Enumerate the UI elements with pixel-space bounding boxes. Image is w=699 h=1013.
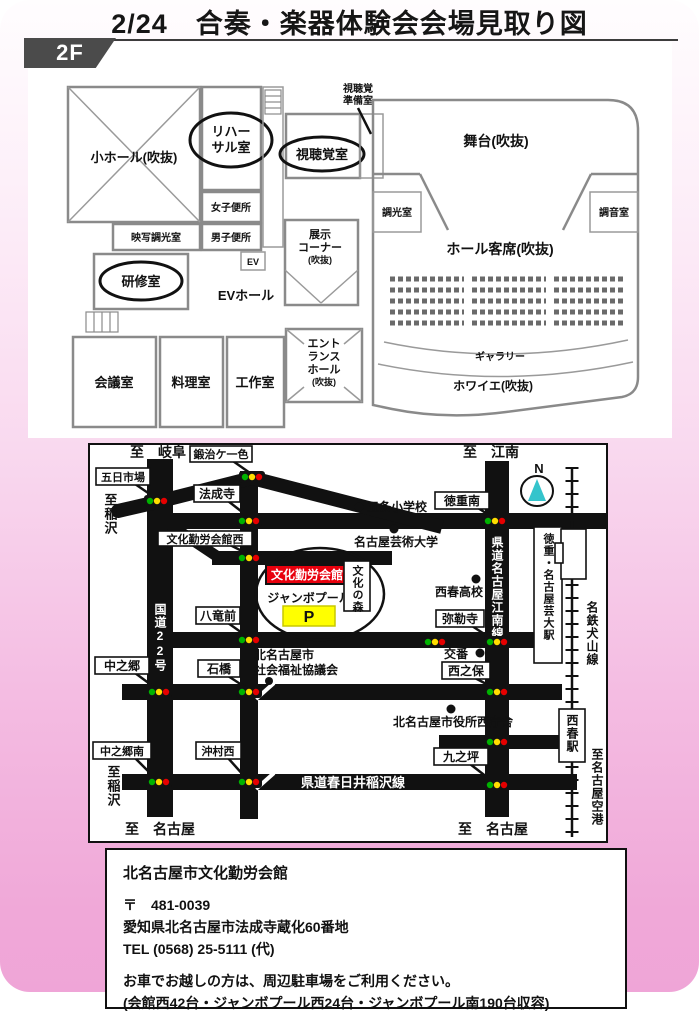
direction-to-inazawa-bottom: 至稲沢	[106, 765, 121, 807]
elevator: EV	[241, 252, 265, 270]
room-label-ev-hall: EVホール	[218, 288, 274, 303]
traffic-signal	[236, 515, 262, 527]
page-title: 2/24 合奏・楽器体験会会場見取り図	[0, 2, 699, 41]
signal-label-mirokuji: 弥勒寺	[442, 611, 478, 626]
signal-label-kaikan-nishi: 文化勤労会館西	[167, 532, 244, 546]
road-label-kasugai-line: 県道春日井稲沢線	[301, 775, 406, 790]
room-label-rehearsal-1: リハー	[211, 124, 250, 139]
room-label-small-hall: 小ホール(吹抜)	[91, 150, 178, 165]
room-label-entrance-3: ホール	[308, 363, 341, 376]
signal-label-kunotsubo: 九之坪	[442, 749, 479, 764]
traffic-signal	[236, 552, 262, 564]
traffic-signal	[484, 779, 510, 791]
room-label-entrance-1: エント	[308, 337, 341, 350]
signal-label-hachiryumae: 八竜前	[199, 608, 236, 623]
floor-plan-drawing: 小ホール(吹抜) リハー サル室 女子便所 映写調光室 男子便所	[28, 42, 672, 438]
signal-label-hojoji: 法成寺	[199, 486, 235, 501]
venue-info-parking-note: お車でお越しの方は、周辺駐車場をご利用ください。	[123, 971, 609, 991]
venue-info-name: 北名古屋市文化勤労会館	[123, 862, 609, 883]
room-label-entrance-2: ランス	[308, 350, 341, 363]
room-label-av: 視聴覚室	[295, 147, 348, 162]
direction-to-nagoya-left: 至 名古屋	[125, 821, 195, 837]
room-label-tuning: 調音室	[599, 206, 629, 219]
room-label-rehearsal-2: サル室	[211, 140, 250, 155]
direction-to-airport: 至名古屋空港	[590, 748, 604, 826]
room-label-exhibit-2: コーナー	[298, 241, 342, 254]
room-label-av-prep-1: 視聴覚	[342, 82, 373, 95]
small-hall: 小ホール(吹抜)	[68, 87, 200, 222]
station-nishiharu: 西春駅	[559, 709, 585, 762]
room-label-training: 研修室	[121, 274, 160, 289]
road-label-route22: 国道22号	[153, 603, 167, 672]
seat-rows	[390, 279, 624, 323]
room-label-projection: 映写調光室	[131, 231, 181, 244]
signal-label-tokushige-minami: 徳重南	[443, 493, 480, 508]
traffic-signal	[482, 515, 508, 527]
parking-p-label: P	[304, 609, 315, 626]
access-map-card: 文化勤労会館 ジャンボプール P 文化の森 国道22号 県道名古屋江南線 県道春…	[88, 443, 608, 843]
stairs-lower	[86, 312, 118, 332]
road-label-meitetsu: 名鉄犬山線	[585, 600, 599, 666]
direction-to-konan: 至 江南	[463, 445, 519, 460]
meeting-room: 会議室	[73, 337, 156, 427]
station-label-nishiharu: 西春駅	[565, 714, 579, 753]
womens-toilet: 女子便所	[202, 192, 261, 222]
traffic-signal	[239, 471, 265, 483]
entrance-hall: エント ランス ホール (吹抜)	[286, 329, 362, 402]
road-label-konan-line: 県道名古屋江南線	[490, 536, 504, 640]
venue-info-parking-capacity: (会館西42台・ジャンボプール西24台・ジャンボプール南190台収容)	[123, 993, 609, 1013]
signal-label-okimura-nishi: 沖村西	[202, 744, 235, 758]
signal-label-ishibashi: 石橋	[206, 661, 232, 676]
room-label-ev: EV	[247, 257, 259, 267]
av-prep-room: 視聴覚 準備室	[342, 82, 383, 178]
direction-to-inazawa-top: 至稲沢	[103, 493, 118, 535]
roads	[118, 459, 606, 819]
signal-label-itsukaichiba: 五日市場	[101, 470, 145, 484]
bunka-no-mori-label: 文化の森	[351, 564, 364, 613]
landmark-dot-nishiharu-hs	[472, 575, 481, 584]
mens-toilet: 男子便所	[202, 224, 261, 250]
corridor-stairs	[263, 87, 283, 247]
exhibit-corner: 展示 コーナー (吹抜)	[285, 220, 358, 305]
room-label-stage: 舞台(吹抜)	[463, 133, 528, 149]
landmark-dot-geidai-univ	[390, 525, 399, 534]
room-label-av-prep-2: 準備室	[343, 94, 373, 107]
room-label-womens-toilet: 女子便所	[211, 201, 251, 214]
rehearsal-room: リハー サル室	[190, 87, 272, 190]
craft-room: 工作室	[227, 337, 284, 427]
venue-info-address: 愛知県北名古屋市法成寺蔵化60番地	[123, 917, 609, 937]
room-label-cooking: 料理室	[171, 375, 210, 390]
floor-plan-card: 小ホール(吹抜) リハー サル室 女子便所 映写調光室 男子便所	[28, 42, 672, 438]
av-room: 視聴覚室	[280, 114, 364, 178]
signal-label-nishinoho: 西之保	[448, 663, 485, 678]
landmark-dot-gojo	[355, 503, 364, 512]
traffic-signal	[236, 634, 262, 646]
signal-label-nakanogo: 中之郷	[104, 658, 140, 673]
venue-info-box: 北名古屋市文化勤労会館 〒 481-0039 愛知県北名古屋市法成寺蔵化60番地…	[105, 848, 627, 1009]
main-hall: 舞台(吹抜) 調光室 調音室 ホール客席(吹抜)	[373, 100, 638, 415]
cooking-room: 料理室	[160, 337, 223, 427]
projection-room: 映写調光室	[113, 224, 200, 250]
venue-info-tel: TEL (0568) 25-5111 (代)	[123, 939, 609, 959]
venue-name-label: 文化勤労会館	[271, 567, 343, 582]
landmark-label-gojo: 五条小学校	[367, 499, 428, 514]
room-label-exhibit-1: 展示	[308, 228, 331, 241]
room-label-foyer: ホワイエ(吹抜)	[453, 378, 533, 393]
room-label-craft: 工作室	[235, 375, 274, 390]
room-label-hall-seats: ホール客席(吹抜)	[446, 241, 553, 257]
landmark-dot-koban	[476, 649, 485, 658]
landmark-label-geidai-univ: 名古屋芸術大学	[354, 534, 438, 549]
landmark-label-nishiharu-hs: 西春高校	[435, 584, 484, 599]
room-label-mens-toilet: 男子便所	[211, 231, 251, 244]
traffic-signal	[484, 686, 510, 698]
room-label-meeting: 会議室	[94, 375, 133, 390]
landmark-label-cityhall: 北名古屋市役所西庁舎	[393, 714, 514, 729]
jumbo-pool-label: ジャンボプール	[267, 590, 350, 605]
direction-to-nagoya-right: 至 名古屋	[458, 821, 528, 837]
traffic-signal	[146, 686, 172, 698]
traffic-signal	[146, 776, 172, 788]
signal-label-nakanogo-minami: 中之郷南	[100, 744, 144, 758]
landmark-label-shakyo-1: 北名古屋市	[254, 647, 314, 662]
venue-info-postal: 〒 481-0039	[123, 895, 609, 915]
access-map-drawing: 文化勤労会館 ジャンボプール P 文化の森 国道22号 県道名古屋江南線 県道春…	[90, 445, 606, 841]
traffic-signal	[484, 636, 510, 648]
title-underline	[112, 39, 678, 41]
room-label-exhibit-3: (吹抜)	[308, 254, 332, 265]
traffic-signal	[236, 776, 262, 788]
traffic-signal	[236, 686, 262, 698]
direction-to-gifu: 至 岐阜	[130, 445, 186, 460]
room-label-gallery: ギャラリー	[475, 350, 525, 363]
room-label-entrance-4: (吹抜)	[312, 376, 336, 387]
station-label-tokushige-geidai: 徳重・名古屋芸大駅	[542, 532, 556, 641]
training-room: 研修室	[94, 254, 188, 309]
landmark-dot-shakyo	[265, 677, 273, 685]
landmark-dot-cityhall	[447, 705, 456, 714]
traffic-signal	[484, 736, 510, 748]
traffic-signal	[144, 495, 170, 507]
signal-label-kajigaisshiki: 鍛治ケ一色	[194, 447, 249, 461]
compass-n-label: N	[534, 461, 543, 476]
room-label-dimming: 調光室	[382, 206, 412, 219]
compass: N	[521, 461, 553, 506]
station-tokushige-geidai: 徳重・名古屋芸大駅	[534, 527, 586, 663]
landmark-label-shakyo-2: 社会福祉協議会	[253, 662, 339, 677]
landmark-label-koban: 交番	[444, 646, 469, 661]
